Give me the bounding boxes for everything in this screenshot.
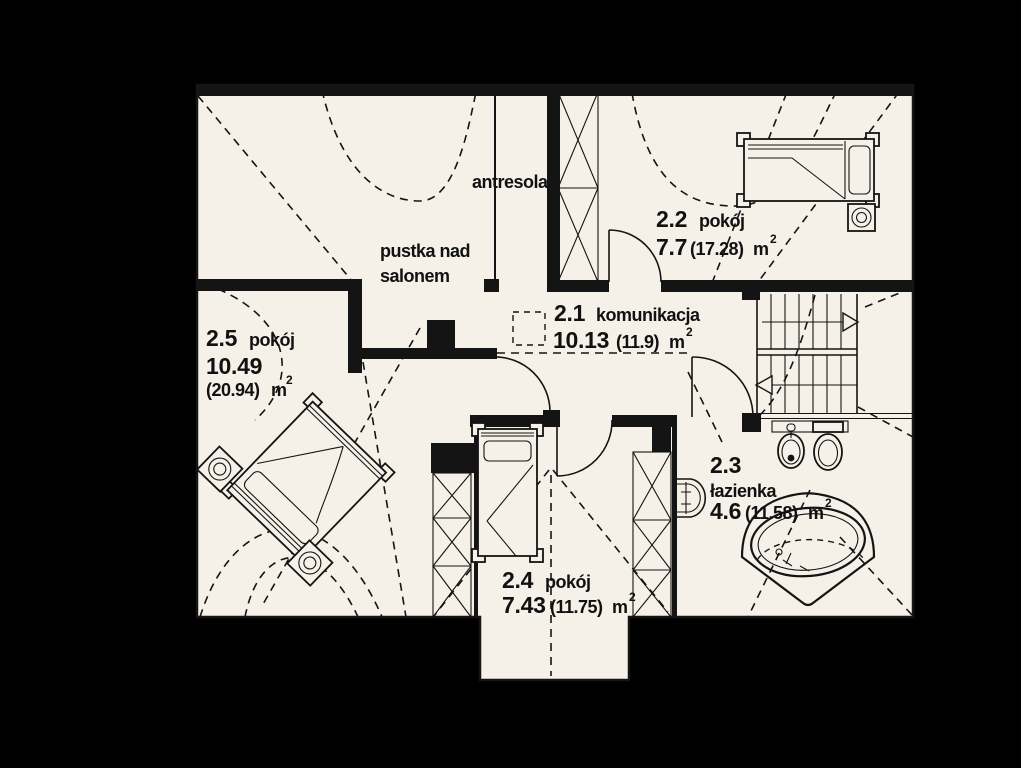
- floor-plan-page: antresola pustka nad salonem 2.1 komunik…: [0, 0, 1021, 768]
- wall-segment: [742, 413, 761, 432]
- label-antresola: antresola: [472, 172, 549, 192]
- area-unit: m: [271, 380, 287, 400]
- wall-segment: [672, 415, 677, 617]
- area-unit-sup: 2: [770, 232, 777, 246]
- chimney-block: [427, 320, 455, 349]
- room-number: 2.1: [554, 300, 586, 326]
- room-area: 4.6: [710, 498, 741, 524]
- label-pustka-line1: pustka nad: [380, 241, 470, 261]
- area-unit: m: [753, 239, 769, 259]
- room-area: 10.49: [206, 353, 262, 379]
- wall-segment: [197, 279, 361, 291]
- room-number: 2.4: [502, 567, 534, 593]
- area-unit: m: [808, 503, 824, 523]
- nightstand-room-2-2: [848, 204, 875, 231]
- room-number: 2.2: [656, 206, 687, 232]
- room-name: pokój: [249, 330, 295, 350]
- room-name: pokój: [545, 572, 591, 592]
- room-area-total: (11.58): [745, 503, 798, 523]
- room-area: 7.43: [502, 592, 546, 618]
- room-area-total: (11.75): [550, 597, 603, 617]
- area-unit-sup: 2: [686, 325, 693, 339]
- area-unit-sup: 2: [629, 590, 636, 604]
- floor-plan-drawing: antresola pustka nad salonem 2.1 komunik…: [0, 0, 1021, 768]
- bed-single-room-2-4: [472, 423, 543, 562]
- area-unit-sup: 2: [286, 373, 293, 387]
- wall-segment: [484, 279, 499, 292]
- room-area: 7.7: [656, 234, 687, 260]
- room-name: pokój: [699, 211, 745, 231]
- room-area-total: (11.9): [616, 332, 660, 352]
- area-unit: m: [669, 332, 685, 352]
- wall-segment: [348, 348, 497, 359]
- label-pustka-line2: salonem: [380, 266, 450, 286]
- area-unit: m: [612, 597, 628, 617]
- room-area-total: (20.94): [206, 380, 260, 400]
- room-number: 2.5: [206, 325, 238, 351]
- wall-segment: [652, 419, 671, 452]
- room-name: komunikacja: [596, 305, 701, 325]
- room-area-total: (17.28): [690, 239, 744, 259]
- area-unit-sup: 2: [825, 496, 832, 510]
- room-number: 2.3: [710, 452, 741, 478]
- room-area: 10.13: [553, 327, 609, 353]
- toilet: [813, 422, 843, 470]
- wall-segment: [661, 280, 913, 292]
